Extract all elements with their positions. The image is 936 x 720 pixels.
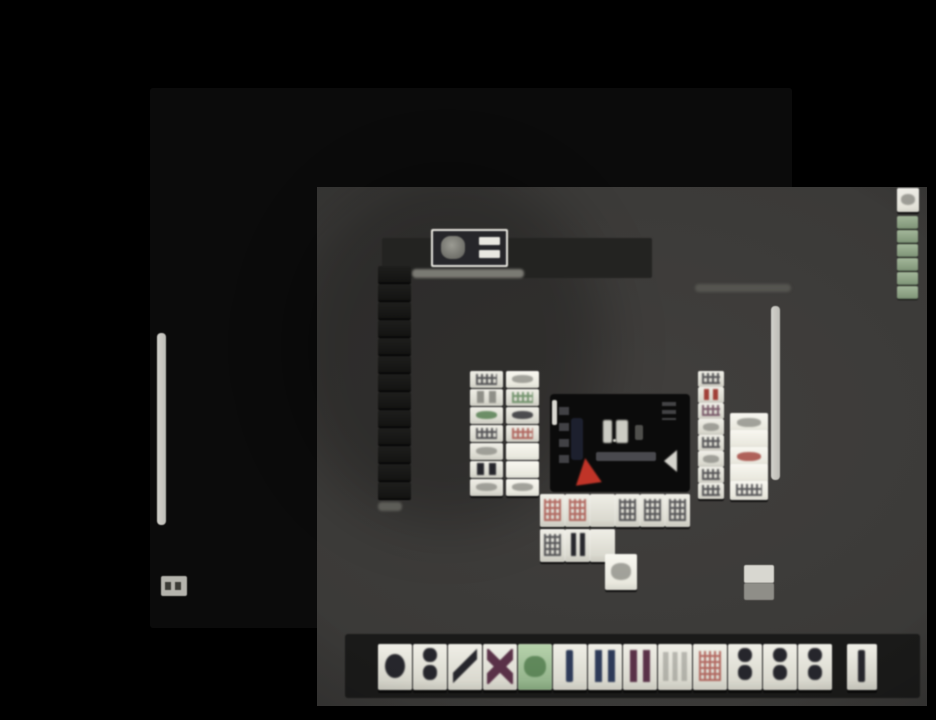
discard-tile — [470, 461, 503, 478]
player-info-card — [431, 229, 508, 267]
card-text-line — [479, 250, 500, 258]
wall-tile-back — [378, 392, 411, 409]
tile-glyph — [512, 392, 534, 403]
tile-glyph — [571, 533, 585, 556]
drawn-tile[interactable] — [847, 644, 877, 690]
bottom-right-button-top[interactable] — [744, 565, 774, 583]
center-info-panel — [550, 394, 690, 492]
discard-tile — [698, 467, 724, 483]
hand-tile[interactable] — [623, 644, 657, 690]
tile-glyph — [669, 499, 686, 521]
round-indicator — [616, 420, 628, 443]
tile-glyph — [476, 447, 497, 455]
hand-tile[interactable] — [553, 644, 587, 690]
discard-tile — [698, 435, 724, 451]
tile-glyph — [476, 374, 498, 385]
discard-tile — [506, 461, 539, 478]
tile-glyph — [566, 650, 573, 682]
wall-tile-back — [378, 428, 411, 445]
tile-glyph — [702, 469, 719, 480]
tile-glyph — [773, 648, 787, 663]
discard-tile — [698, 483, 724, 499]
game-window — [150, 88, 792, 628]
dead-wall-tile — [897, 286, 918, 299]
left-player-score — [559, 407, 569, 471]
wall-tile-back — [378, 302, 411, 319]
tile-glyph — [423, 648, 437, 663]
round-indicator — [603, 420, 612, 443]
tile-glyph — [512, 375, 533, 383]
dead-wall-tile — [897, 244, 918, 257]
discard-tile — [470, 389, 503, 406]
button-glyph-icon — [175, 582, 181, 590]
left-scrollbar[interactable] — [157, 333, 166, 525]
tile-glyph — [702, 485, 719, 496]
tile-glyph — [385, 654, 405, 678]
tile-glyph — [476, 483, 497, 491]
hand-tile[interactable] — [658, 644, 692, 690]
wall-tile-back — [378, 284, 411, 301]
tile-glyph — [901, 194, 915, 205]
player-name-text — [412, 269, 524, 278]
discard-tile — [506, 407, 539, 424]
tile-glyph — [619, 499, 636, 521]
active-player-bar — [552, 400, 557, 425]
tile-glyph — [512, 483, 533, 491]
round-indicator-dot — [613, 439, 616, 442]
bottom-right-button-bottom[interactable] — [744, 583, 774, 600]
hand-tile[interactable] — [378, 644, 412, 690]
tile-glyph — [476, 411, 497, 419]
tile-glyph — [703, 423, 720, 430]
dead-wall-tile — [897, 272, 918, 285]
discard-tile — [665, 494, 690, 527]
avatar — [441, 236, 465, 259]
hand-tile[interactable] — [413, 644, 447, 690]
honba-count — [635, 425, 643, 440]
discard-tile — [470, 371, 503, 388]
discard-tile — [540, 494, 565, 527]
hand-tile[interactable] — [518, 644, 552, 690]
tile-glyph — [477, 463, 495, 475]
right-scrollbar[interactable] — [771, 306, 780, 480]
discard-tile — [506, 425, 539, 442]
hand-tile[interactable] — [483, 644, 517, 690]
tile-glyph — [858, 650, 865, 682]
discard-tile — [506, 371, 539, 388]
tile-glyph — [702, 373, 719, 384]
tile-glyph — [704, 389, 719, 400]
tile-glyph — [487, 649, 513, 684]
discard-tile — [506, 443, 539, 460]
hand-tile[interactable] — [728, 644, 762, 690]
discard-tile — [605, 554, 637, 590]
tile-glyph — [663, 652, 687, 681]
discard-tile — [698, 371, 724, 387]
info-text-smudge — [695, 284, 791, 292]
tile-glyph — [453, 649, 477, 684]
tile-glyph — [544, 499, 561, 521]
tile-glyph — [699, 651, 721, 681]
mahjong-table — [317, 187, 927, 706]
discard-tile — [615, 494, 640, 527]
tile-glyph — [611, 563, 631, 580]
left-score-shadow — [571, 418, 583, 460]
bottom-left-button[interactable] — [161, 576, 187, 596]
hand-tile[interactable] — [448, 644, 482, 690]
tile-glyph — [630, 650, 649, 682]
direction-marker — [664, 450, 677, 472]
dead-wall-tile — [897, 230, 918, 243]
wall-tile-back — [378, 482, 411, 499]
discard-tile — [698, 403, 724, 419]
discard-tile — [540, 529, 565, 562]
discard-tile — [590, 494, 615, 527]
tile-glyph — [702, 437, 719, 448]
discard-tile — [698, 419, 724, 435]
riichi-stick-bar — [596, 452, 656, 461]
discard-tile — [506, 389, 539, 406]
hand-tile[interactable] — [588, 644, 622, 690]
discard-tile — [698, 387, 724, 403]
dead-wall-tile — [897, 258, 918, 271]
discard-tile — [640, 494, 665, 527]
tile-glyph — [702, 405, 719, 416]
wall-tile-back — [378, 338, 411, 355]
tile-glyph — [737, 452, 761, 461]
wall-tile-back — [378, 410, 411, 427]
wall-tile-back — [378, 446, 411, 463]
button-glyph-icon — [165, 582, 171, 590]
wall-tile-back — [378, 320, 411, 337]
discard-tile — [470, 479, 503, 496]
discard-tile — [730, 481, 768, 500]
tile-glyph — [476, 428, 498, 439]
wall-tile-back — [378, 464, 411, 481]
tile-glyph — [737, 418, 761, 427]
discard-tile — [565, 494, 590, 527]
discard-tile — [470, 407, 503, 424]
wall-tile-back — [378, 266, 411, 283]
discard-tile — [506, 479, 539, 496]
wall-end-smudge — [378, 502, 402, 511]
tile-glyph — [595, 650, 614, 682]
video-frame — [0, 0, 936, 720]
tile-glyph — [738, 648, 752, 663]
tile-glyph — [512, 411, 533, 419]
tile-glyph — [524, 656, 546, 677]
discard-tile — [470, 443, 503, 460]
hand-tile[interactable] — [693, 644, 727, 690]
hand-tile[interactable] — [798, 644, 832, 690]
discard-tile — [698, 451, 724, 467]
discard-tile — [470, 425, 503, 442]
tile-glyph — [808, 648, 822, 663]
tile-glyph — [644, 499, 661, 521]
table-contents — [317, 187, 927, 706]
wall-tile-back — [378, 374, 411, 391]
tile-glyph — [569, 499, 586, 521]
dora-indicator-tile — [897, 188, 919, 212]
wall-tile-back — [378, 356, 411, 373]
hand-tile[interactable] — [763, 644, 797, 690]
tile-glyph — [477, 391, 495, 403]
turn-indicator — [572, 456, 601, 485]
dead-wall-tile — [897, 216, 918, 229]
right-player-score — [662, 402, 676, 420]
tile-glyph — [544, 534, 561, 556]
tile-glyph — [512, 428, 534, 439]
discard-tile — [565, 529, 590, 562]
tile-glyph — [703, 455, 720, 462]
card-text-line — [479, 237, 500, 245]
tile-glyph — [736, 484, 761, 497]
